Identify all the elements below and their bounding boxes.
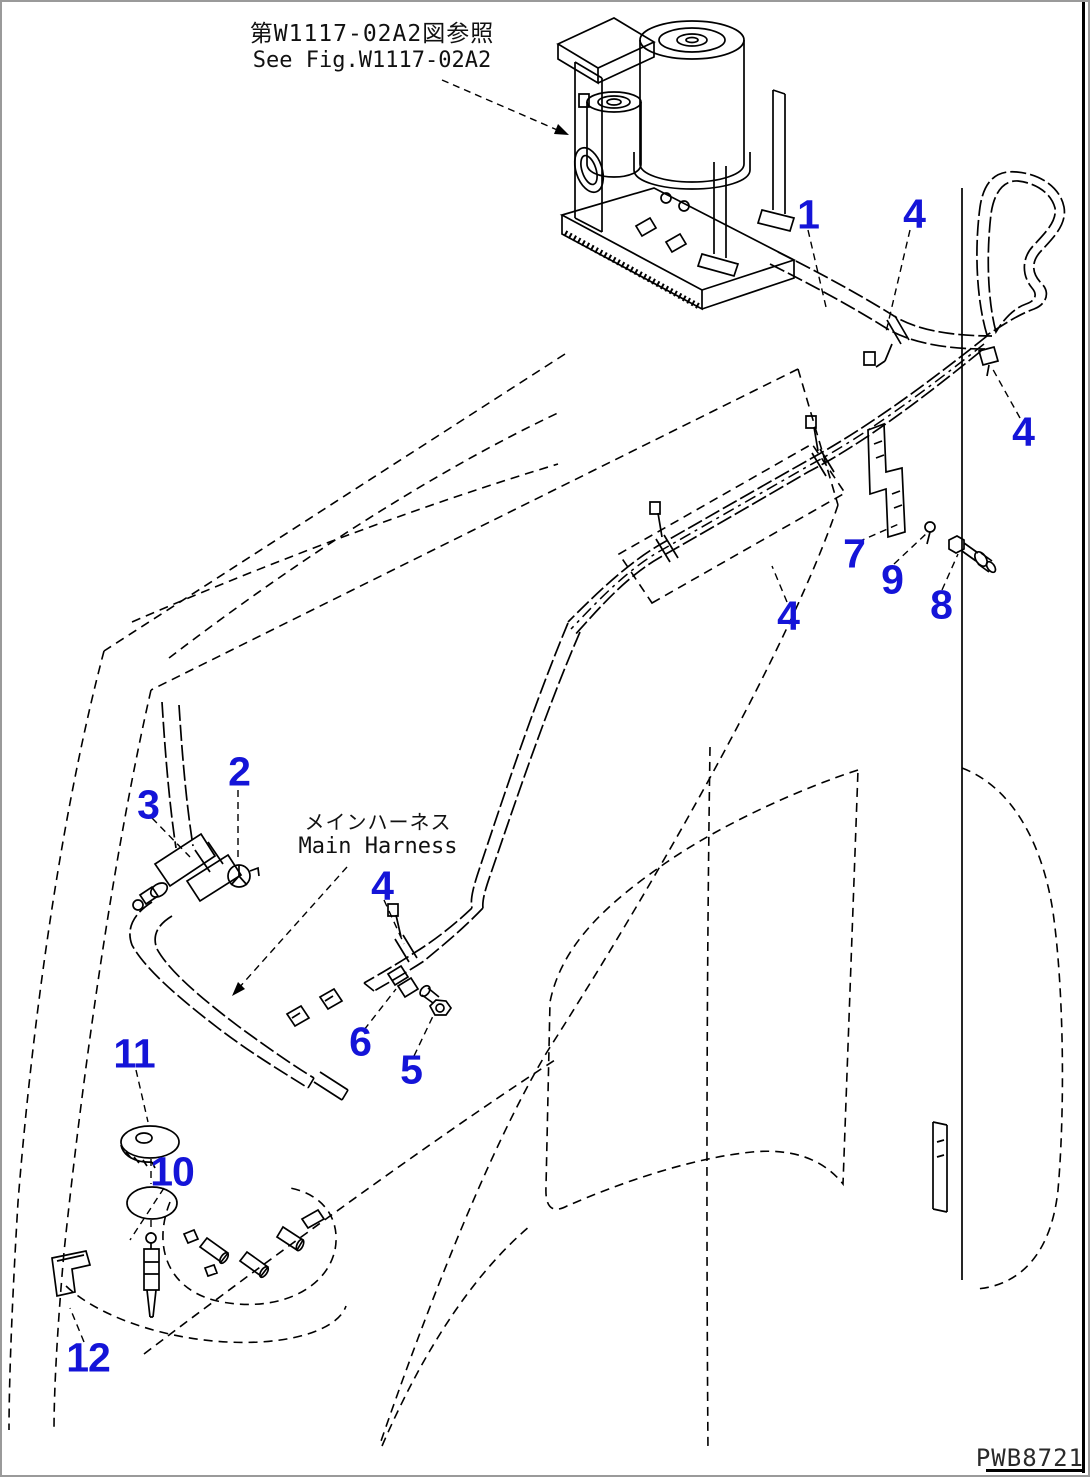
reference-note-jp: 第W1117-02A2図参照 xyxy=(248,20,496,48)
bolt-8 xyxy=(949,536,978,561)
parts-diagram-page: 第W1117-02A2図参照 See Fig.W1117-02A2 メインハーネ… xyxy=(0,0,1090,1477)
main-harness-run xyxy=(130,172,1065,1100)
main-harness-label-jp: メインハーネス xyxy=(296,810,460,834)
right-window xyxy=(962,768,1062,1289)
bolt-10 xyxy=(144,1249,159,1317)
bracket-and-bolts xyxy=(868,424,997,574)
drawing-code: PWB8721 xyxy=(954,1444,1084,1472)
connector-a xyxy=(155,834,215,886)
clip-and-bolt xyxy=(388,966,451,1015)
harness-end-cluster xyxy=(52,1188,346,1342)
washer-9 xyxy=(925,522,935,532)
reference-note-en: See Fig.W1117-02A2 xyxy=(248,48,496,74)
reference-note: 第W1117-02A2図参照 See Fig.W1117-02A2 xyxy=(248,20,496,74)
drawing-frame-right xyxy=(1082,2,1085,1473)
z-bracket xyxy=(868,424,905,537)
main-harness-label: メインハーネス Main Harness xyxy=(296,810,460,861)
harness-clamps xyxy=(287,316,998,1026)
main-harness-label-en: Main Harness xyxy=(296,834,460,860)
leader-lines xyxy=(70,80,1020,1342)
door-window xyxy=(546,770,858,1209)
drawing-frame-bottom xyxy=(986,1469,1085,1472)
clip-right xyxy=(979,347,998,376)
leader-arrowhead xyxy=(554,124,569,135)
connector-b xyxy=(187,855,241,901)
clip-12 xyxy=(52,1251,90,1296)
harness-loop xyxy=(977,172,1065,335)
mount-stack xyxy=(121,1126,179,1317)
connector-cluster xyxy=(133,834,259,910)
roof-plate xyxy=(619,444,845,603)
pump-assembly xyxy=(558,18,794,309)
parts-diagram-drawing xyxy=(2,2,1090,1477)
clip-6 xyxy=(388,966,418,997)
